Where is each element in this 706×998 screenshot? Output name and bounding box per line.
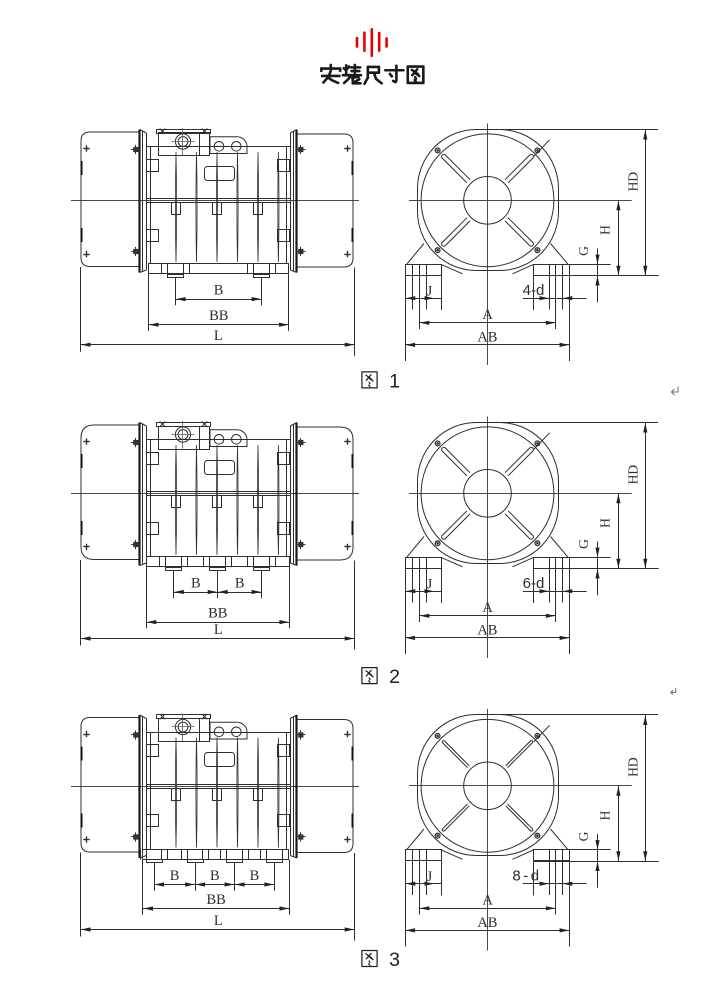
svg-text:AB: AB bbox=[477, 330, 497, 346]
svg-text:AB: AB bbox=[477, 915, 497, 931]
svg-text:AB: AB bbox=[477, 623, 497, 639]
svg-text:B: B bbox=[214, 283, 224, 299]
svg-text:G: G bbox=[576, 831, 591, 841]
svg-text:G: G bbox=[576, 539, 591, 549]
svg-text:G: G bbox=[576, 246, 591, 256]
svg-text:L: L bbox=[214, 913, 223, 929]
svg-text:J: J bbox=[427, 284, 433, 300]
svg-text:HD: HD bbox=[625, 757, 640, 777]
svg-text:HD: HD bbox=[625, 172, 640, 192]
svg-text:H: H bbox=[597, 518, 612, 528]
svg-text:H: H bbox=[597, 810, 612, 820]
svg-text:B: B bbox=[170, 868, 180, 884]
svg-text:2: 2 bbox=[389, 666, 400, 688]
svg-text:A: A bbox=[482, 600, 493, 616]
svg-text:1: 1 bbox=[389, 370, 400, 392]
svg-text:B: B bbox=[250, 868, 260, 884]
svg-text:HD: HD bbox=[625, 465, 640, 485]
svg-text:B: B bbox=[235, 576, 245, 592]
svg-text:J: J bbox=[427, 869, 433, 885]
svg-text:B: B bbox=[191, 576, 201, 592]
svg-text:8-d: 8-d bbox=[512, 868, 541, 885]
svg-text:3: 3 bbox=[389, 949, 400, 971]
svg-text:4-d: 4-d bbox=[523, 282, 545, 299]
svg-text:A: A bbox=[482, 307, 493, 323]
svg-text:BB: BB bbox=[209, 308, 228, 324]
svg-text:6-d: 6-d bbox=[523, 575, 545, 592]
svg-text:L: L bbox=[214, 328, 223, 344]
svg-text:J: J bbox=[427, 577, 433, 593]
svg-text:H: H bbox=[597, 225, 612, 235]
svg-text:L: L bbox=[214, 622, 223, 638]
svg-text:BB: BB bbox=[207, 892, 226, 908]
svg-text:A: A bbox=[482, 893, 493, 909]
svg-text:BB: BB bbox=[208, 606, 227, 622]
svg-text:B: B bbox=[210, 868, 220, 884]
